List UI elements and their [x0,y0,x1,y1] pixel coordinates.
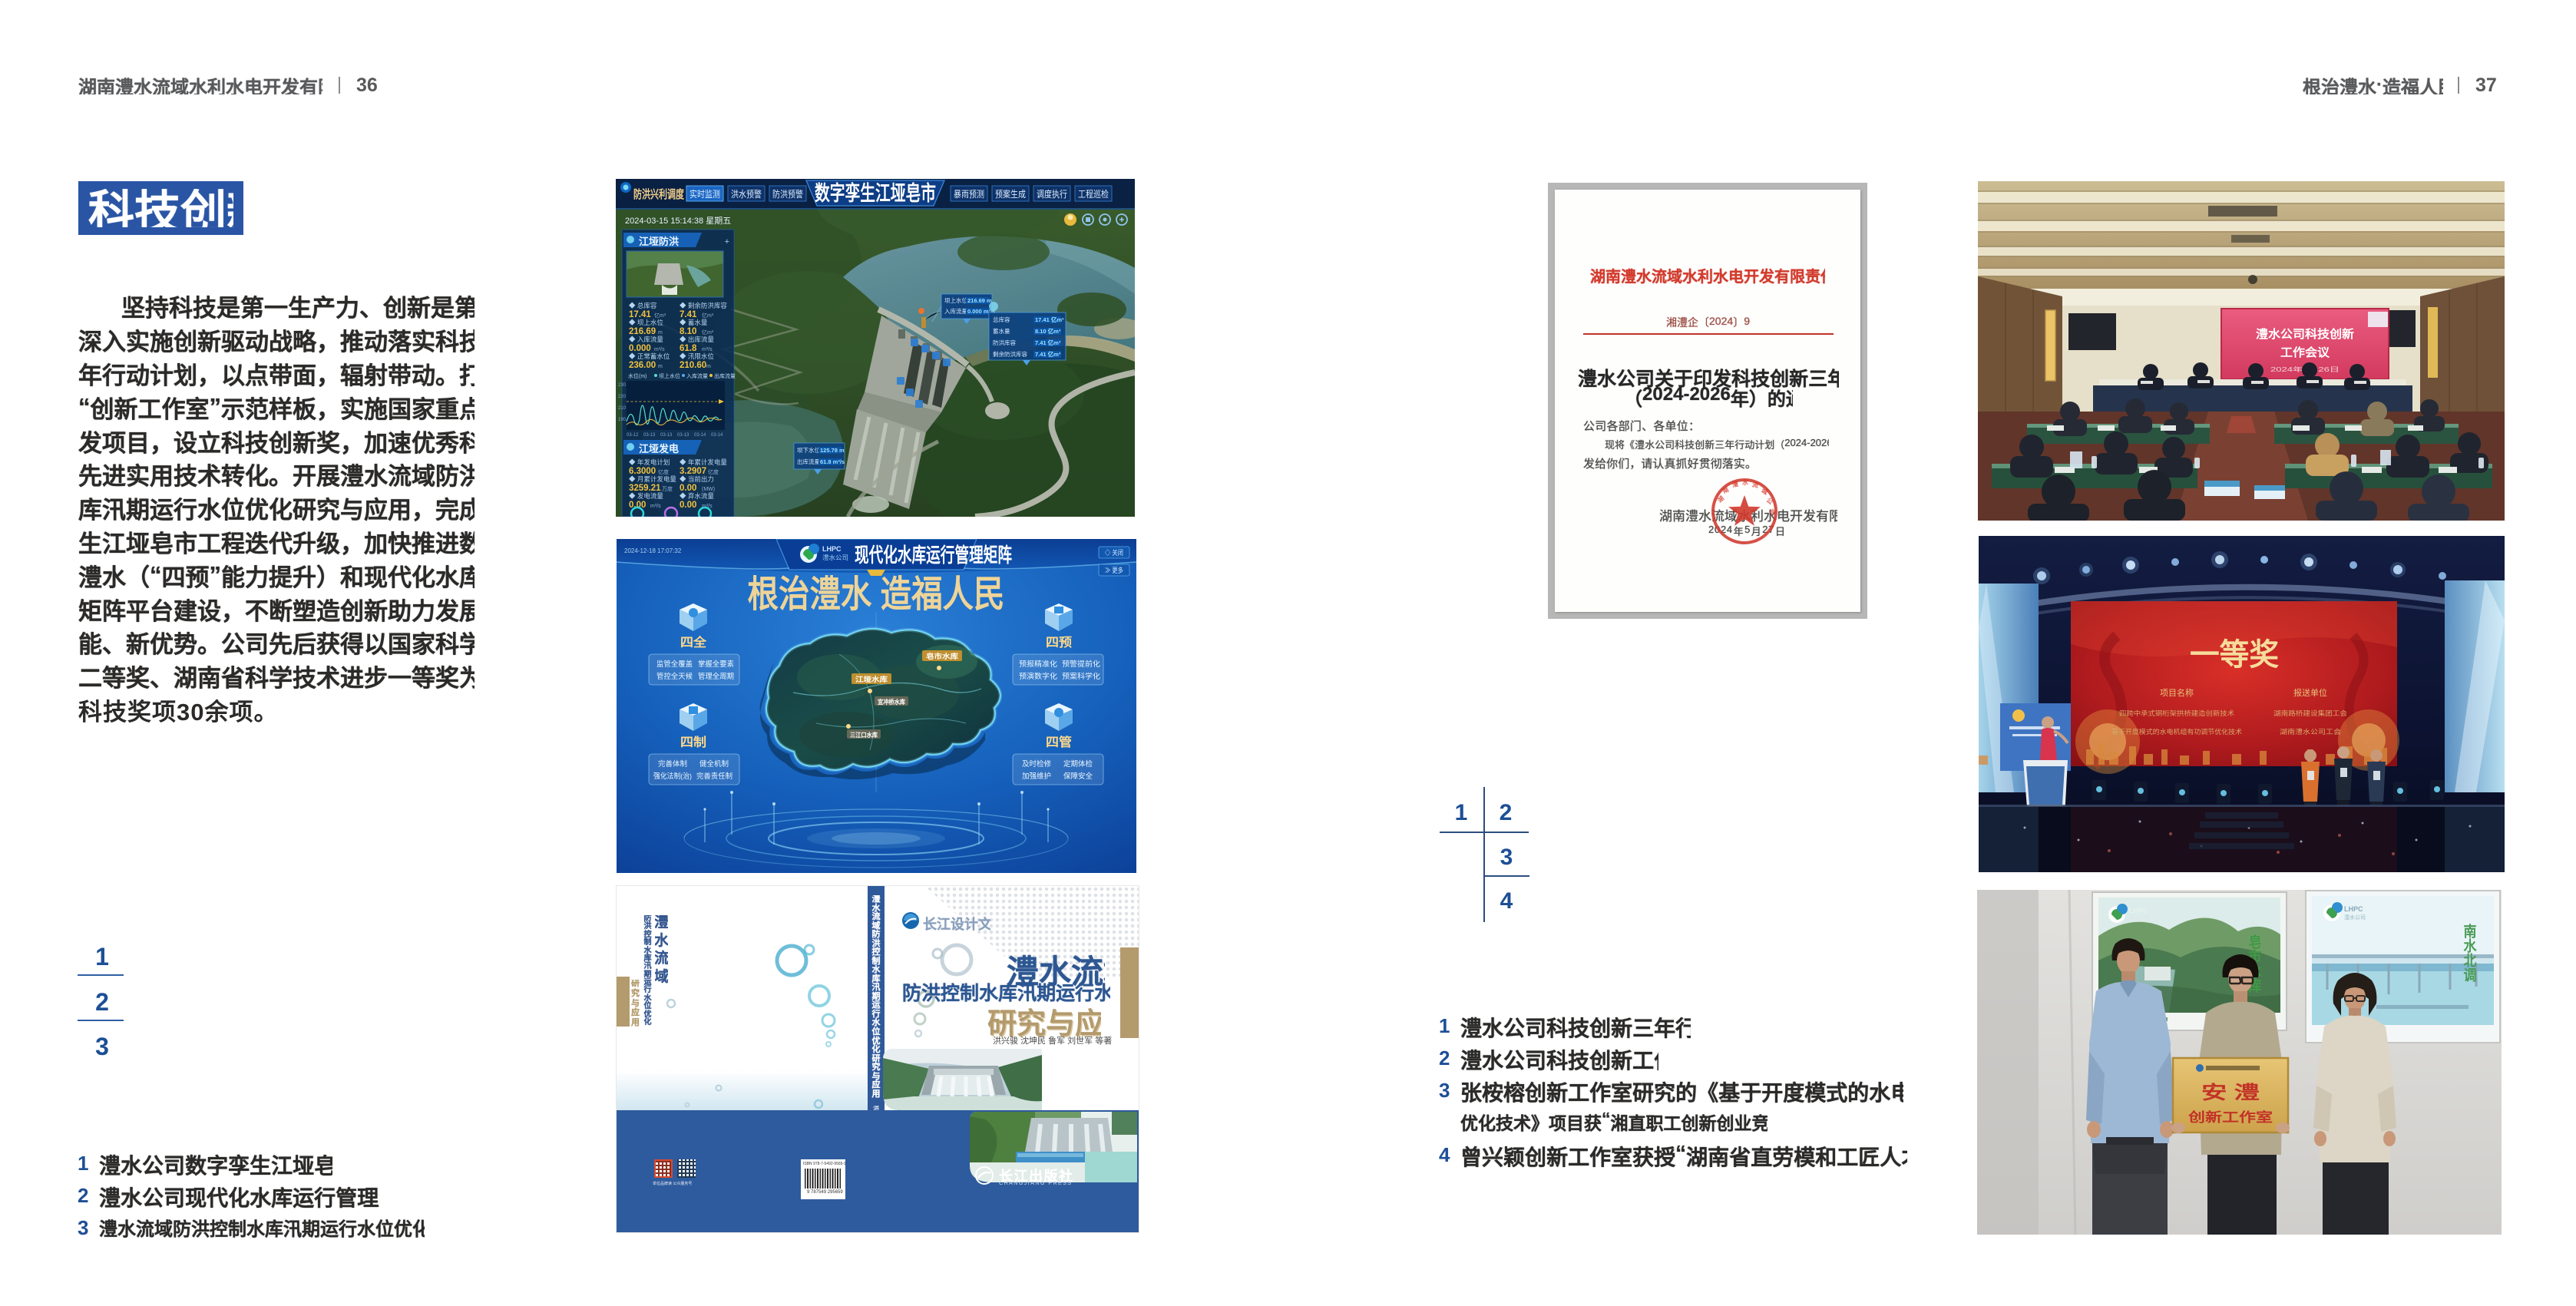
svg-text:蓄水量: 蓄水量 [993,327,1010,335]
svg-text:亿m³: 亿m³ [702,329,714,336]
svg-text:工程巡检: 工程巡检 [1078,188,1109,200]
svg-text:61.8 m³/s: 61.8 m³/s [820,458,845,465]
svg-text:7.41 亿m³: 7.41 亿m³ [1035,339,1061,346]
svg-text:(MW): (MW) [702,487,715,492]
svg-text:◆ 弃水流量: ◆ 弃水流量 [680,492,714,500]
svg-text:出库流量: 出库流量 [797,458,820,465]
svg-text:◆ 年累计发电量: ◆ 年累计发电量 [680,458,727,466]
svg-text:水位(m): 水位(m) [628,372,647,379]
svg-text:2024-03-15 15:14:38 星期五: 2024-03-15 15:14:38 星期五 [625,216,731,226]
svg-text:流: 流 [1751,481,1759,489]
svg-text:项目名称: 项目名称 [2160,687,2194,698]
svg-text:≫ 更多: ≫ 更多 [1105,566,1123,574]
svg-text:一等奖: 一等奖 [2190,638,2279,672]
svg-text:完善责任制: 完善责任制 [696,772,732,781]
svg-text:m: m [706,364,711,369]
svg-text:预演数字化: 预演数字化 [1019,672,1058,681]
svg-text:6.3000: 6.3000 [629,467,656,476]
svg-text:◆ 总库容: ◆ 总库容 [629,302,657,309]
svg-text:预案生成: 预案生成 [995,188,1026,200]
svg-text:坝上水位: 坝上水位 [659,372,680,379]
svg-text:澧水公司: 澧水公司 [822,554,848,561]
svg-text:湖南澧水公司工会: 湖南澧水公司工会 [2280,728,2342,736]
svg-text:报送单位: 报送单位 [2293,687,2327,698]
svg-text:03-12: 03-12 [627,433,639,438]
svg-text:m³/s: m³/s [650,504,661,509]
svg-text:江垭防洪: 江垭防洪 [639,236,679,247]
svg-text:调度执行: 调度执行 [1037,188,1067,200]
svg-text:工作会议: 工作会议 [2280,346,2330,359]
svg-text:03-13: 03-13 [677,433,689,438]
svg-text:0.00: 0.00 [680,484,696,493]
svg-text:南水北调: 南水北调 [2462,923,2477,983]
svg-text:03-14: 03-14 [694,433,706,438]
svg-text:◆ 汛限水位: ◆ 汛限水位 [680,352,714,360]
svg-text:加强维护: 加强维护 [1022,772,1051,781]
svg-text:健全机制: 健全机制 [699,759,729,769]
svg-text:◆ 年发电计划: ◆ 年发电计划 [629,458,670,466]
svg-text:坝上水位: 坝上水位 [944,296,967,304]
svg-text:剩余防洪库容: 剩余防洪库容 [993,350,1027,358]
svg-text:03-13: 03-13 [660,433,673,438]
svg-text:2024-12-18 17:07:32: 2024-12-18 17:07:32 [624,547,682,554]
svg-text:出库流量: 出库流量 [714,372,736,379]
svg-text:澧水公司科技创新: 澧水公司科技创新 [2256,327,2354,341]
svg-text:监管全覆盖: 监管全覆盖 [656,660,693,669]
svg-text:江垭发电: 江垭发电 [639,443,679,455]
svg-text:◆ 坝上水位: ◆ 坝上水位 [629,319,663,326]
svg-text:LHPC: LHPC [2129,907,2148,914]
svg-text:皂市水库: 皂市水库 [926,652,958,660]
svg-text:◇ 关闭: ◇ 关闭 [1105,548,1123,557]
svg-text:216.69 m: 216.69 m [967,297,992,304]
svg-text:210: 210 [618,406,627,411]
svg-text:◆ 剩余防洪库容: ◆ 剩余防洪库容 [680,302,727,309]
svg-text:m: m [658,364,663,369]
svg-text:洪水预警: 洪水预警 [731,188,762,200]
svg-text:3.2907: 3.2907 [680,467,706,476]
svg-text:7.41 亿m³: 7.41 亿m³ [1035,350,1061,358]
svg-text:17.41 亿m³: 17.41 亿m³ [1035,316,1064,323]
svg-text:湖南路桥建设集团工会: 湖南路桥建设集团工会 [2273,709,2348,717]
svg-text:暴雨预测: 暴雨预测 [954,189,984,200]
svg-text:完善体制: 完善体制 [658,759,687,769]
svg-text:总库容: 总库容 [993,316,1010,323]
svg-text:入库流量: 入库流量 [686,372,708,379]
svg-text:强化法制(治): 强化法制(治) [653,772,692,781]
svg-text:◆ 当前出力: ◆ 当前出力 [680,475,714,483]
svg-text:0.000: 0.000 [629,344,651,353]
svg-text:◆ 出库流量: ◆ 出库流量 [680,336,714,343]
svg-text:万度: 万度 [662,485,673,492]
svg-text:澧水公司: 澧水公司 [2129,915,2151,922]
svg-text:南: 南 [1721,485,1730,494]
svg-text:现代化水库运行管理矩阵: 现代化水库运行管理矩阵 [855,544,1012,567]
svg-text:220: 220 [618,395,627,399]
svg-text:四全: 四全 [680,635,707,650]
svg-text:亿度: 亿度 [658,468,669,475]
svg-text:◆ 月累计发电量: ◆ 月累计发电量 [629,475,676,483]
svg-text:亿m³: 亿m³ [654,312,666,319]
svg-text:掌握全要素: 掌握全要素 [698,660,734,669]
svg-text:管理全周期: 管理全周期 [698,672,734,681]
svg-text:m: m [658,330,663,336]
svg-text:7.41: 7.41 [680,310,697,319]
svg-text:及时检修: 及时检修 [1022,759,1051,769]
svg-text:03-13: 03-13 [643,433,656,438]
svg-text:管控全天候: 管控全天候 [656,672,693,681]
svg-text:水: 水 [1741,478,1749,486]
svg-text:数字孪生江垭皂市: 数字孪生江垭皂市 [815,181,936,205]
svg-text:坝下水位: 坝下水位 [797,446,820,454]
svg-text:预报精准化: 预报精准化 [1019,660,1058,669]
svg-text:8.10 亿m³: 8.10 亿m³ [1035,327,1061,335]
svg-text:防洪库容: 防洪库容 [993,339,1016,346]
svg-text:m³/s: m³/s [702,347,713,352]
svg-text:澧水公司: 澧水公司 [2344,914,2366,921]
svg-text:防洪兴利调度: 防洪兴利调度 [633,187,685,201]
svg-text:61.8: 61.8 [680,344,697,353]
svg-text:预案科学化: 预案科学化 [1062,672,1101,681]
svg-text:实时监测: 实时监测 [689,188,720,200]
svg-text:江垭水库: 江垭水库 [855,675,888,683]
svg-text:190: 190 [618,418,627,422]
svg-text:定期体检: 定期体检 [1063,759,1093,769]
svg-text:四制: 四制 [680,736,706,749]
svg-text:8.10: 8.10 [680,327,696,336]
svg-text:基于开度模式的水电机组有功调节优化技术: 基于开度模式的水电机组有功调节优化技术 [2111,728,2243,736]
svg-text:LHPC: LHPC [822,545,842,553]
svg-text:230: 230 [618,383,627,388]
svg-text:入库流量: 入库流量 [944,307,967,315]
svg-text:216.69: 216.69 [629,327,656,336]
svg-text:创新工作室: 创新工作室 [2187,1109,2273,1125]
svg-text:◆ 入库流量: ◆ 入库流量 [629,336,663,343]
svg-text:亿m³: 亿m³ [702,312,714,319]
svg-text:根治澧水 造福人民: 根治澧水 造福人民 [748,574,1005,615]
svg-text:LHPC: LHPC [2344,905,2363,913]
svg-text:236.00: 236.00 [629,361,656,370]
svg-text:三江口水库: 三江口水库 [850,731,878,739]
svg-text:17.41: 17.41 [629,310,651,319]
svg-text:四跨中承式钢桁架拱桥建造创新技术: 四跨中承式钢桁架拱桥建造创新技术 [2119,709,2235,717]
svg-text:预警提前化: 预警提前化 [1062,660,1101,669]
svg-text:m³/s: m³/s [654,347,665,352]
svg-text:宜冲桥水库: 宜冲桥水库 [878,698,905,706]
svg-text:防洪预警: 防洪预警 [772,188,803,200]
svg-text:◆ 蓄水量: ◆ 蓄水量 [680,319,708,326]
svg-text:125.78 m: 125.78 m [820,447,845,454]
svg-text:0.00: 0.00 [680,501,696,510]
svg-text:210.60: 210.60 [680,361,706,370]
svg-text:+: + [725,237,729,246]
svg-text:亿度: 亿度 [708,468,719,475]
svg-text:3259.21: 3259.21 [629,484,661,493]
svg-text:四预: 四预 [1046,636,1072,650]
svg-text:◆ 发电流量: ◆ 发电流量 [629,492,663,500]
svg-text:保障安全: 保障安全 [1063,772,1093,781]
svg-text:03-14: 03-14 [711,433,723,438]
svg-text:安 澧: 安 澧 [2201,1082,2260,1103]
svg-text:◆ 正常蓄水位: ◆ 正常蓄水位 [629,352,670,360]
svg-text:四管: 四管 [1046,735,1072,749]
